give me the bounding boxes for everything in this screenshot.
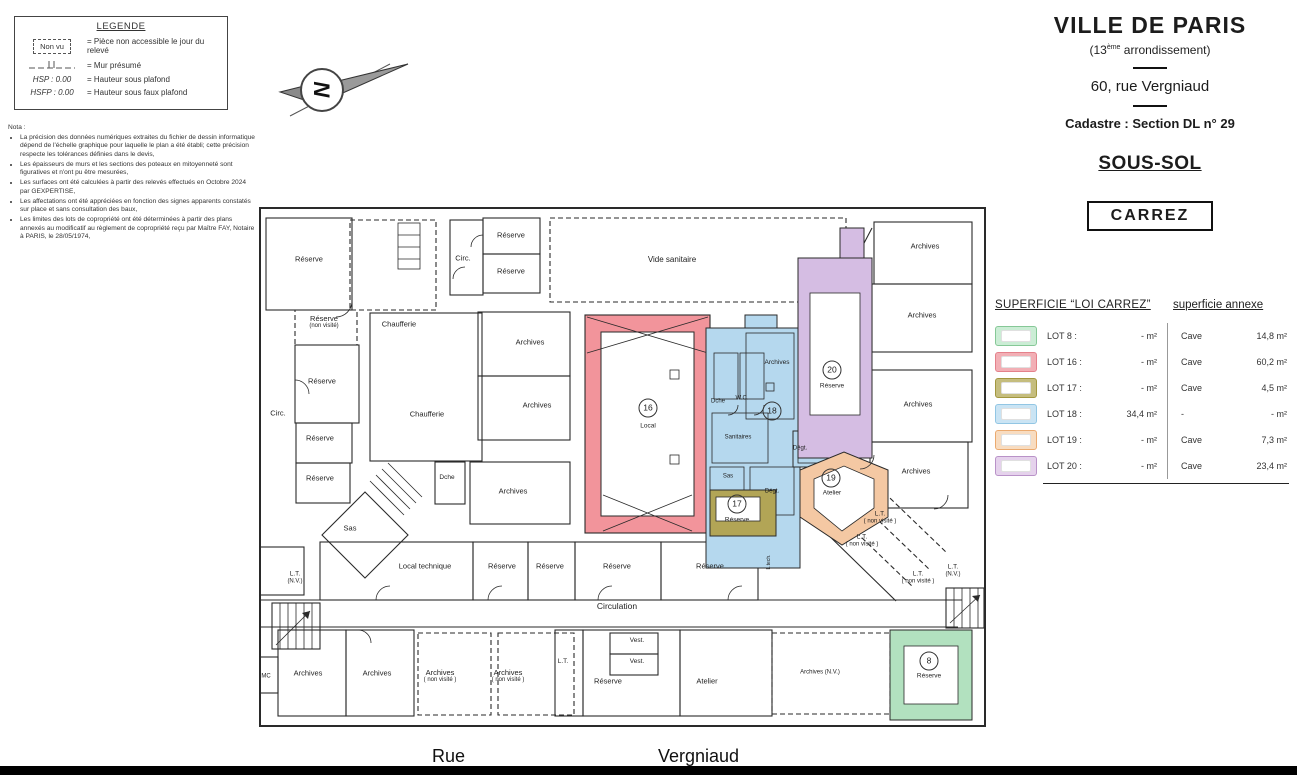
room-label: Archives — [904, 400, 933, 409]
room-label: Atelier — [696, 677, 717, 686]
room-label: Chaufferie — [410, 410, 444, 419]
carrez-value: - m² — [1105, 435, 1157, 445]
table-row: LOT 8 :- m²Cave14,8 m² — [995, 323, 1291, 349]
street-edge-bar — [0, 766, 1297, 775]
legend-row: Non vu = Pièce non accessible le jour du… — [21, 37, 221, 55]
room-label: L.T.( non visité ) — [902, 571, 935, 586]
lot-number-badge: 20 — [823, 361, 842, 380]
room-label: Vide sanitaire — [648, 255, 696, 265]
carrez-table: SUPERFICIE “LOI CARREZ” superficie annex… — [995, 299, 1291, 479]
legend-text: = Hauteur sous plafond — [87, 75, 170, 84]
legend-title: LEGENDE — [21, 21, 221, 32]
room-label: Archives — [902, 467, 931, 476]
floor-plan-drawing — [258, 205, 988, 730]
lot-name-label: Réserve — [917, 673, 941, 680]
room-label: Sas — [344, 524, 357, 533]
room-label: Réserve — [306, 434, 334, 443]
room-label: Réserve — [308, 377, 336, 386]
room-label: Réserve — [603, 562, 631, 571]
room-label: Circ. — [270, 409, 285, 418]
room-label: Archives — [523, 401, 552, 410]
lot-color-swatch — [995, 326, 1037, 346]
table-bottom-rule — [1043, 483, 1289, 484]
lot-name-label: Atelier — [823, 490, 841, 497]
room-label: L.T.(N.V.) — [287, 571, 302, 586]
room-label: MC — [261, 673, 270, 680]
lot-label: LOT 8 : — [1047, 331, 1105, 341]
room-label: L.tech. — [766, 554, 772, 569]
table-row: LOT 18 :34,4 m²-- m² — [995, 401, 1291, 427]
col-annex-header: superficie annexe — [1173, 299, 1263, 311]
room-label: Vest. — [630, 637, 644, 645]
nota-item: La précision des données numériques extr… — [20, 134, 256, 159]
street-word-rue: Rue — [432, 746, 465, 767]
room-label: Dche — [711, 398, 725, 405]
room-label: Dche — [439, 474, 454, 482]
nota-item: Les épaisseurs de murs et les sections d… — [20, 161, 256, 177]
room-label: Archives — [908, 311, 937, 320]
divider — [1133, 67, 1167, 69]
page: LEGENDE Non vu = Pièce non accessible le… — [0, 0, 1303, 777]
carrez-box: CARREZ — [1087, 201, 1214, 231]
lot-name-label: Local — [640, 423, 656, 430]
table-row: LOT 16 :- m²Cave60,2 m² — [995, 349, 1291, 375]
room-label: Réserve — [594, 677, 622, 686]
room-label: Réserve — [497, 267, 525, 276]
annex-type: Cave — [1181, 331, 1227, 341]
room-label: Réserve — [497, 231, 525, 240]
room-label: L.T.( non visité ) — [864, 511, 897, 526]
nota-item: Les affectations ont été appréciées en f… — [20, 198, 256, 214]
title-block: VILLE DE PARIS (13ème arrondissement) 60… — [1010, 12, 1290, 231]
lot-number-badge: 19 — [822, 469, 841, 488]
room-label: Sanitaires — [725, 434, 752, 441]
annex-value: 14,8 m² — [1227, 331, 1291, 341]
annex-value: - m² — [1227, 409, 1291, 419]
col-carrez-header: SUPERFICIE “LOI CARREZ” — [995, 299, 1161, 311]
room-label: Réserve(non visité) — [309, 314, 338, 330]
carrez-value: - m² — [1105, 383, 1157, 393]
divider — [1133, 105, 1167, 107]
nota-item: Les limites des lots de copropriété ont … — [20, 216, 256, 241]
room-label: L.T. — [558, 658, 568, 666]
room-label: Vest. — [630, 658, 644, 666]
room-label: Archives — [516, 338, 545, 347]
room-label: Archives( non visité ) — [492, 668, 525, 684]
annex-type: Cave — [1181, 435, 1227, 445]
arrondissement: (13ème arrondissement) — [1010, 43, 1290, 57]
dashed-wall-symbol — [21, 59, 83, 71]
nonvu-symbol: Non vu — [21, 39, 83, 54]
level-title: SOUS-SOL — [1010, 153, 1290, 175]
room-label: Réserve — [295, 255, 323, 264]
lot-number-badge: 18 — [763, 402, 782, 421]
room-label: Archives — [911, 242, 940, 251]
lot-color-swatch — [995, 404, 1037, 424]
lot-color-swatch — [995, 456, 1037, 476]
annex-value: 4,5 m² — [1227, 383, 1291, 393]
room-label: Dégt. — [765, 488, 779, 495]
table-row: LOT 20 :- m²Cave23,4 m² — [995, 453, 1291, 479]
lot-name-label: Réserve — [820, 383, 844, 390]
carrez-value: - m² — [1105, 331, 1157, 341]
room-label: Local technique — [399, 562, 452, 571]
room-label: Réserve — [696, 562, 724, 571]
nota-title: Nota : — [8, 124, 256, 132]
floor-plan: RéserveRéserve(non visité)RéserveChauffe… — [258, 205, 988, 730]
room-label: Circ. — [455, 254, 470, 263]
annex-type: Cave — [1181, 357, 1227, 367]
room-label: Archives — [499, 487, 528, 496]
room-label: Dégt. — [793, 445, 807, 452]
annex-type: Cave — [1181, 383, 1227, 393]
annex-value: 23,4 m² — [1227, 461, 1291, 471]
room-label: Réserve — [536, 562, 564, 571]
city-title: VILLE DE PARIS — [1010, 12, 1290, 39]
room-label: Archives( non visité ) — [424, 668, 457, 684]
nota-block: Nota : La précision des données numériqu… — [8, 124, 256, 243]
room-label: Réserve — [488, 562, 516, 571]
address: 60, rue Vergniaud — [1010, 78, 1290, 95]
room-label: Archives — [363, 669, 392, 678]
legend-text: = Hauteur sous faux plafond — [87, 88, 187, 97]
room-label: L.T.(N.V.) — [945, 564, 960, 579]
room-label: Réserve — [306, 474, 334, 483]
table-headers: SUPERFICIE “LOI CARREZ” superficie annex… — [995, 299, 1291, 311]
hsp-symbol: HSP : 0.00 — [21, 75, 83, 84]
carrez-value: - m² — [1105, 357, 1157, 367]
room-label: Archives — [294, 669, 323, 678]
lot-label: LOT 17 : — [1047, 383, 1105, 393]
nota-item: Les surfaces ont été calculées à partir … — [20, 179, 256, 195]
room-label: Circulation — [597, 601, 637, 611]
table-row: LOT 19 :- m²Cave7,3 m² — [995, 427, 1291, 453]
lot-number-badge: 8 — [920, 652, 939, 671]
street-word-vergniaud: Vergniaud — [658, 746, 739, 767]
lot-name-label: Réserve — [725, 517, 749, 524]
lot-number-badge: 17 — [728, 495, 747, 514]
legend-box: LEGENDE Non vu = Pièce non accessible le… — [14, 16, 228, 110]
legend-row: HSFP : 0.00 = Hauteur sous faux plafond — [21, 88, 221, 97]
legend-text: = Mur présumé — [87, 61, 141, 70]
carrez-value: - m² — [1105, 461, 1157, 471]
table-row: LOT 17 :- m²Cave4,5 m² — [995, 375, 1291, 401]
lot-number-badge: 16 — [639, 399, 658, 418]
annex-type: Cave — [1181, 461, 1227, 471]
annex-type: - — [1181, 409, 1227, 419]
room-label: Chaufferie — [382, 320, 416, 329]
legend-row: = Mur présumé — [21, 59, 221, 71]
lot-color-swatch — [995, 352, 1037, 372]
lot-color-swatch — [995, 430, 1037, 450]
legend-text: = Pièce non accessible le jour du relevé — [87, 37, 221, 55]
dashed-wall-icon — [28, 59, 76, 71]
annex-value: 60,2 m² — [1227, 357, 1291, 367]
table-rows: LOT 8 :- m²Cave14,8 m²LOT 16 :- m²Cave60… — [995, 323, 1291, 479]
hsfp-symbol: HSFP : 0.00 — [21, 88, 83, 97]
room-label: W.C. — [736, 395, 749, 402]
lot-color-swatch — [995, 378, 1037, 398]
room-label: Archives — [765, 359, 790, 367]
carrez-value: 34,4 m² — [1105, 409, 1157, 419]
north-compass-icon: N — [272, 52, 412, 124]
annex-value: 7,3 m² — [1227, 435, 1291, 445]
lot-label: LOT 19 : — [1047, 435, 1105, 445]
svg-text:N: N — [310, 81, 335, 98]
cadastre: Cadastre : Section DL n° 29 — [1010, 116, 1290, 131]
legend-row: HSP : 0.00 = Hauteur sous plafond — [21, 75, 221, 84]
room-label: Archives (N.V.) — [800, 669, 840, 676]
lot-label: LOT 18 : — [1047, 409, 1105, 419]
room-label: L.T.( non visité ) — [846, 534, 879, 549]
nota-list: La précision des données numériques extr… — [8, 134, 256, 241]
lot-label: LOT 16 : — [1047, 357, 1105, 367]
table-divider — [1167, 323, 1168, 479]
room-label: Sas — [723, 473, 733, 480]
lot-label: LOT 20 : — [1047, 461, 1105, 471]
